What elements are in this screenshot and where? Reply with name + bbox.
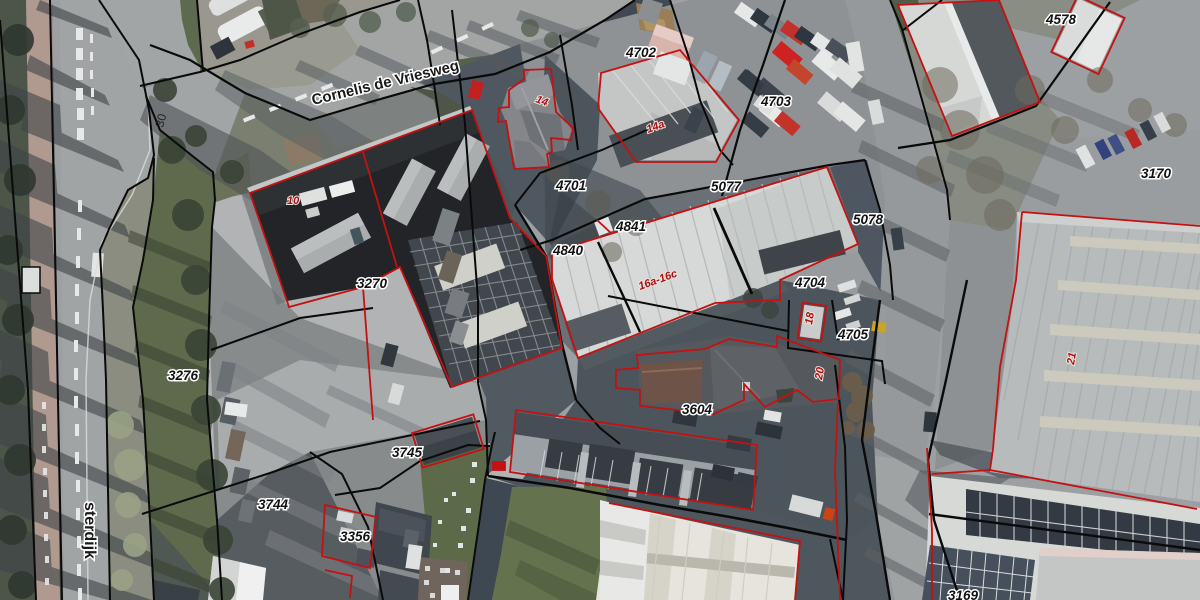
svg-text:4703: 4703 [760,94,792,109]
svg-text:3745: 3745 [392,445,423,460]
svg-text:4705: 4705 [837,327,869,342]
svg-text:3744: 3744 [258,497,289,512]
svg-text:4840: 4840 [552,243,584,258]
svg-text:4578: 4578 [1045,12,1077,27]
svg-text:4702: 4702 [625,45,657,60]
svg-text:4841: 4841 [615,219,646,234]
svg-text:3356: 3356 [340,529,371,544]
svg-text:4704: 4704 [794,275,826,290]
svg-text:5077: 5077 [711,179,743,194]
svg-text:3170: 3170 [1141,166,1172,181]
svg-text:21: 21 [1065,351,1079,366]
svg-text:sterdijk: sterdijk [81,502,98,559]
svg-text:4701: 4701 [555,178,586,193]
svg-text:3270: 3270 [357,276,388,291]
svg-text:3169: 3169 [948,588,979,600]
svg-text:3276: 3276 [168,368,199,383]
svg-text:10: 10 [287,195,300,207]
svg-text:3604: 3604 [682,402,713,417]
svg-text:5078: 5078 [853,212,884,227]
